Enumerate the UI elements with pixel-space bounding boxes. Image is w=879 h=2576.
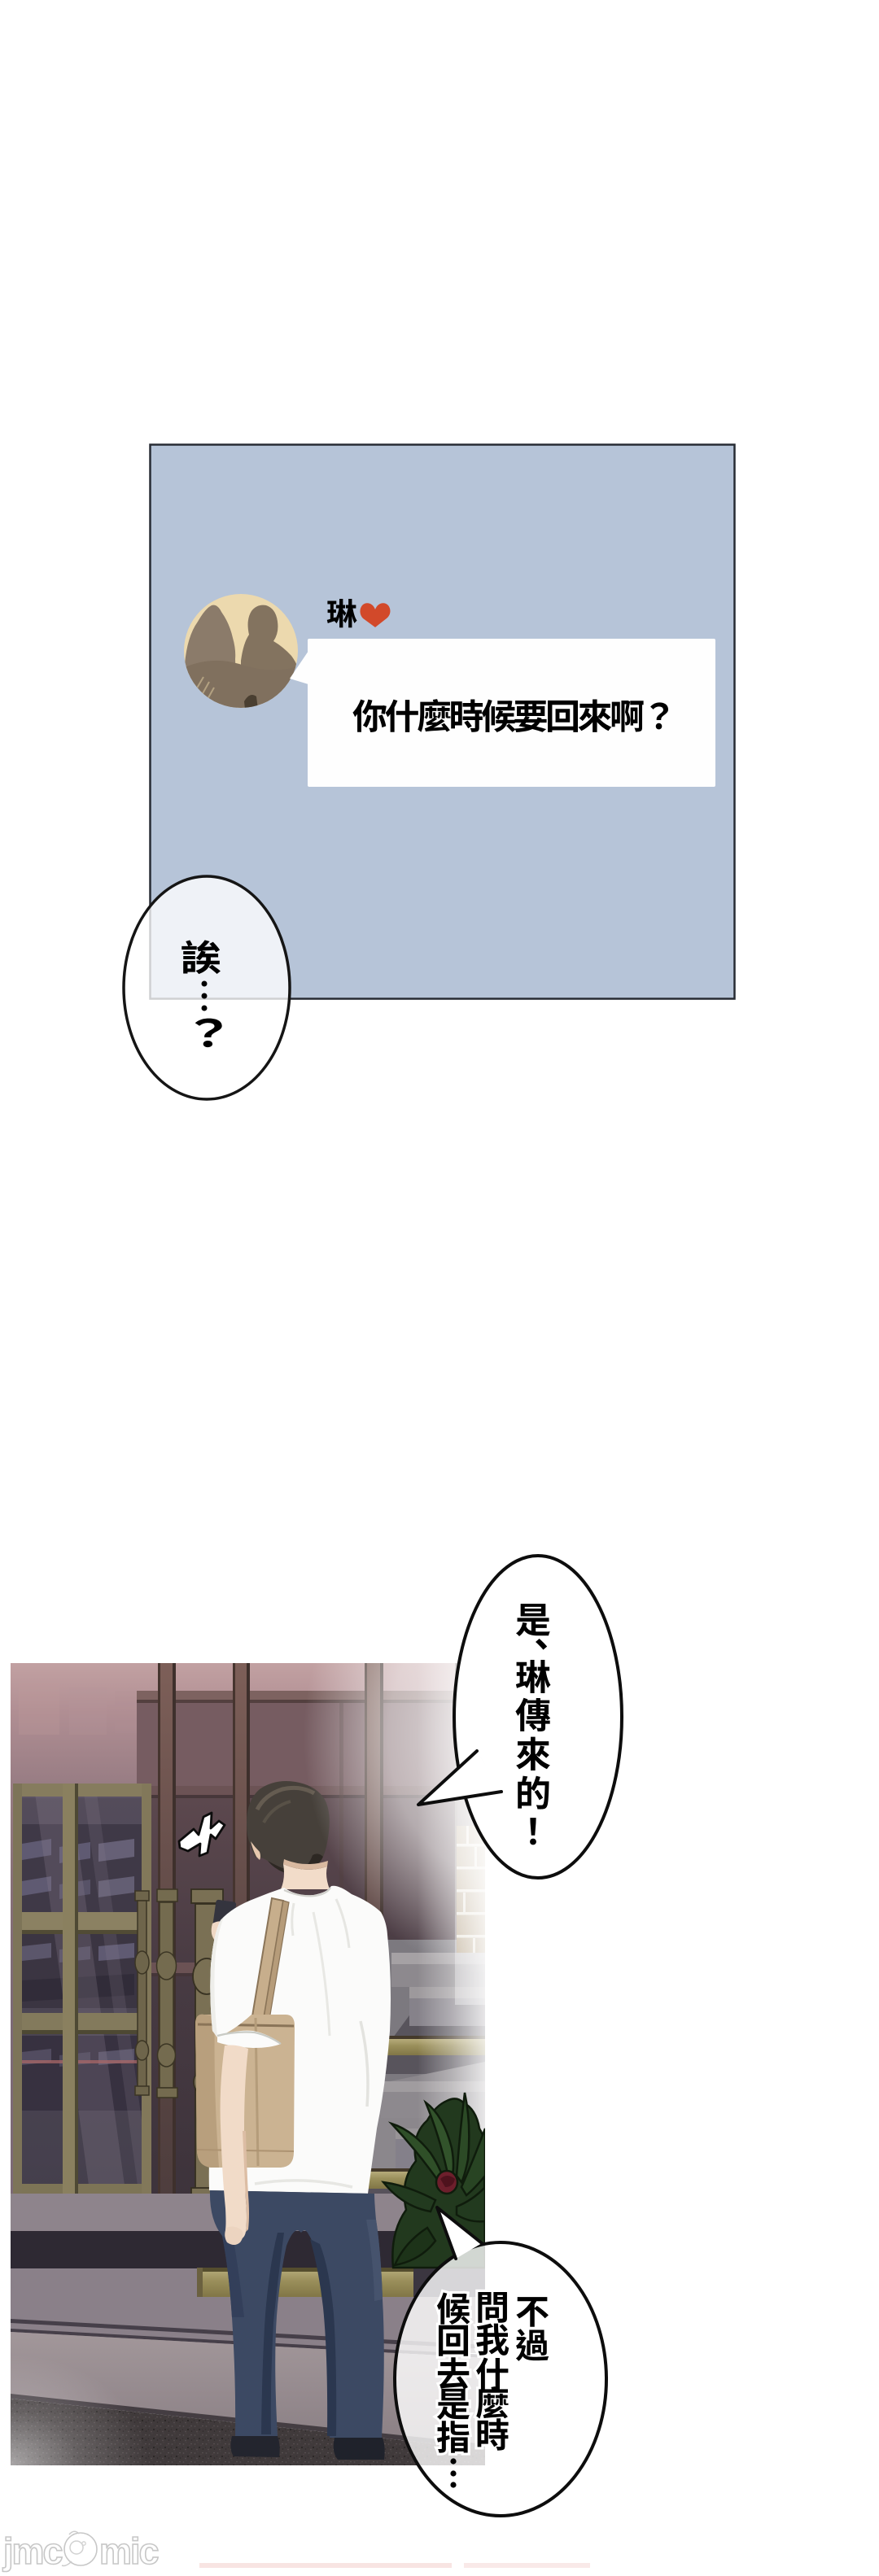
svg-text:mic: mic	[99, 2530, 159, 2572]
svg-text:jmc: jmc	[2, 2530, 63, 2572]
